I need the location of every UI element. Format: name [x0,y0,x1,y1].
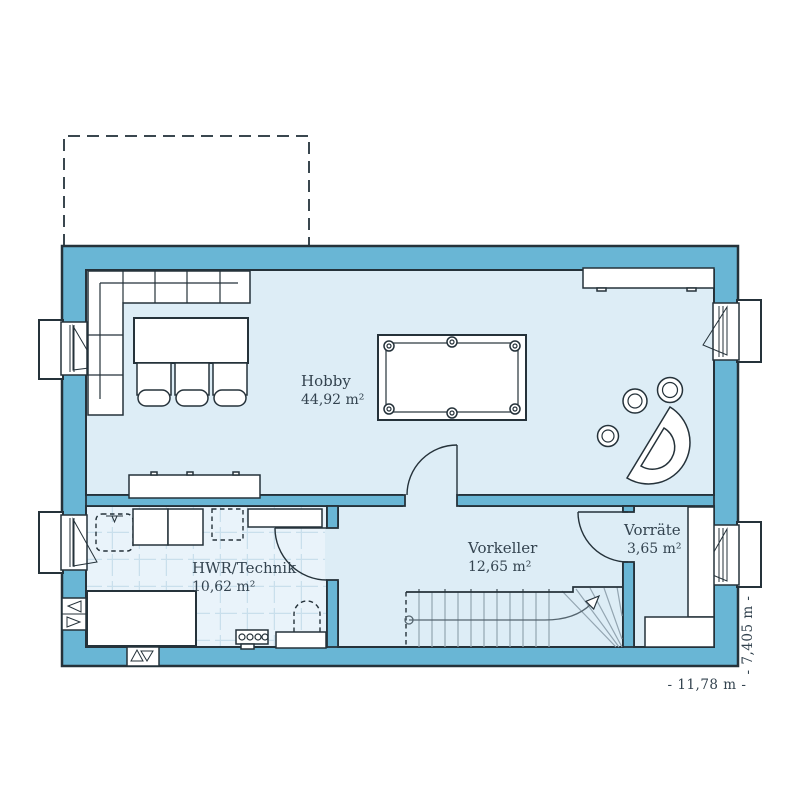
floor-plan: Hobby 44,92 m² HWR/Technik 10,62 m² Vork… [0,0,800,800]
light-well [39,512,63,573]
room-name: Vorkeller [467,539,538,557]
vent-left-wall [62,598,86,630]
room-name: Hobby [301,372,351,390]
terrace-outline [64,136,309,246]
room-name: HWR/Technik [192,559,297,577]
dimension-width-label: - 11,78 m - [668,677,747,693]
room-area: 10,62 m² [192,579,255,595]
wall-shelf-hwr [248,509,322,527]
light-well [737,300,761,362]
room-area: 44,92 m² [301,392,364,408]
window-icon [713,525,739,585]
room-area: 12,65 m² [468,559,531,575]
light-well [39,320,63,379]
sideboard-top-right [583,268,714,291]
sideboard-mid-left [129,472,260,498]
vent-icon [127,647,159,666]
washing-machine [133,509,168,545]
window-icon [713,303,739,360]
room-name: Vorräte [623,521,681,539]
dimension-depth-label: - 7,405 m - [740,596,756,675]
vent-bottom-wall [127,647,159,666]
light-well [737,522,761,587]
dining-chairs [137,363,247,406]
dryer [168,509,203,545]
billiard-table [378,335,526,420]
room-area: 3,65 m² [627,541,682,557]
dining-table [134,318,248,363]
work-table [87,591,196,646]
